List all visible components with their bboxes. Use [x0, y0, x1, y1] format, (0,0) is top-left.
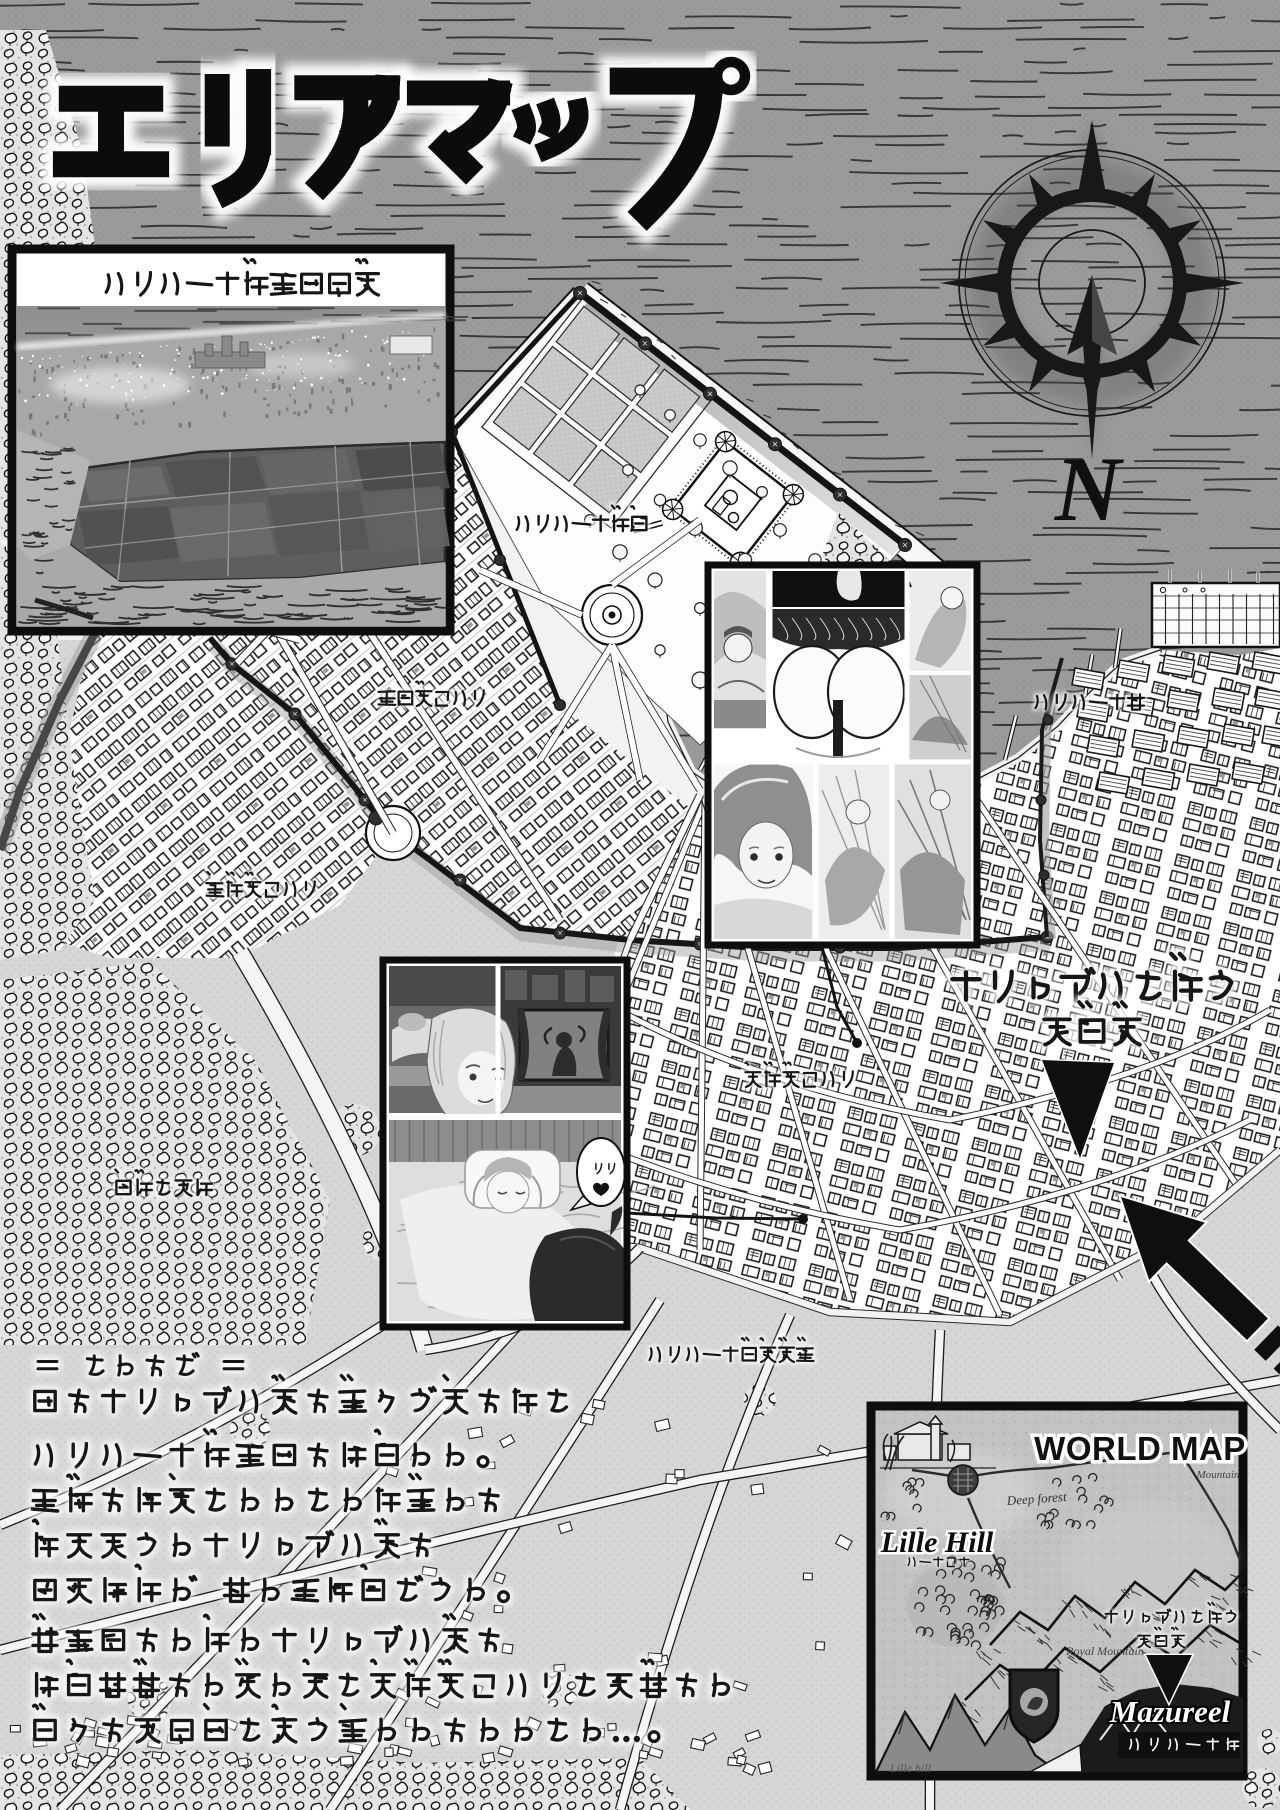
- svg-text:WORLD MAP: WORLD MAP: [1034, 1430, 1246, 1467]
- svg-text:Lille hill: Lille hill: [889, 1761, 932, 1775]
- svg-text:N: N: [1054, 438, 1125, 540]
- svg-text:Mountain: Mountain: [1196, 1469, 1240, 1481]
- svg-text:Lille Hill: Lille Hill: [880, 1526, 994, 1559]
- svg-text:Royal Mountain: Royal Mountain: [1065, 1644, 1144, 1658]
